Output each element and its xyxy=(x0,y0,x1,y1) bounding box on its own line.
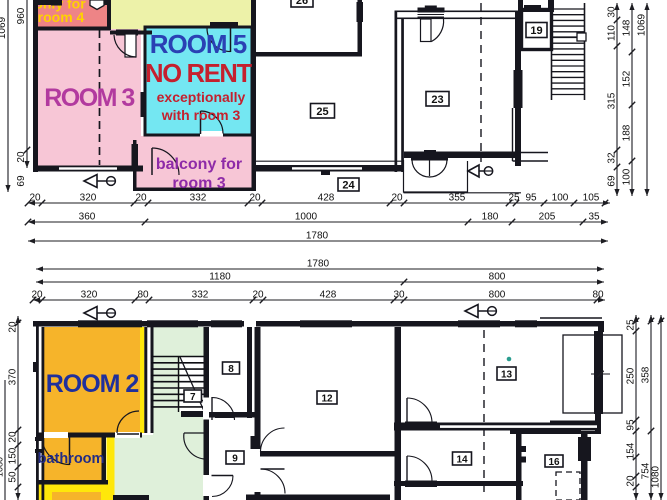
svg-text:1069: 1069 xyxy=(637,13,648,36)
svg-text:20: 20 xyxy=(252,290,264,301)
svg-text:19: 19 xyxy=(530,25,542,37)
svg-text:26: 26 xyxy=(296,0,308,7)
svg-text:148: 148 xyxy=(622,19,633,36)
svg-text:150: 150 xyxy=(8,447,19,464)
svg-text:12: 12 xyxy=(321,394,333,405)
svg-text:1000: 1000 xyxy=(295,212,318,223)
svg-text:105: 105 xyxy=(583,193,600,204)
svg-text:25: 25 xyxy=(626,319,637,331)
svg-text:80: 80 xyxy=(592,290,604,301)
svg-text:24: 24 xyxy=(342,180,355,192)
svg-text:110: 110 xyxy=(607,25,618,41)
svg-text:1780: 1780 xyxy=(307,259,330,270)
svg-text:20: 20 xyxy=(31,290,43,301)
svg-text:1180: 1180 xyxy=(209,272,231,283)
svg-text:332: 332 xyxy=(190,193,207,204)
svg-text:320: 320 xyxy=(80,193,97,204)
svg-text:balcony for: balcony for xyxy=(156,156,242,173)
svg-text:205: 205 xyxy=(539,212,556,223)
svg-text:room 3: room 3 xyxy=(172,175,225,192)
svg-text:1069: 1069 xyxy=(0,16,8,39)
svg-text:1080: 1080 xyxy=(651,465,662,488)
svg-text:180: 180 xyxy=(482,212,499,223)
svg-text:960: 960 xyxy=(16,7,27,24)
svg-text:exceptionally: exceptionally xyxy=(157,89,246,105)
svg-text:250: 250 xyxy=(626,367,637,384)
svg-text:8: 8 xyxy=(228,364,234,375)
svg-text:80: 80 xyxy=(137,290,149,301)
svg-text:9: 9 xyxy=(232,454,238,465)
svg-text:13: 13 xyxy=(501,370,513,381)
svg-text:360: 360 xyxy=(79,212,96,223)
svg-text:23: 23 xyxy=(431,94,443,106)
svg-text:154: 154 xyxy=(626,442,637,459)
svg-text:bathroom: bathroom xyxy=(38,451,105,467)
svg-text:428: 428 xyxy=(318,193,335,204)
svg-text:25: 25 xyxy=(316,106,328,118)
svg-text:14: 14 xyxy=(456,455,468,466)
svg-text:800: 800 xyxy=(489,272,506,283)
svg-text:7: 7 xyxy=(190,392,196,403)
svg-text:with room 3: with room 3 xyxy=(161,107,241,123)
svg-text:800: 800 xyxy=(489,290,506,301)
svg-text:room 4: room 4 xyxy=(38,9,85,25)
svg-text:20: 20 xyxy=(135,193,147,204)
svg-text:315: 315 xyxy=(607,92,618,109)
svg-text:100: 100 xyxy=(622,168,633,185)
svg-text:69: 69 xyxy=(16,175,27,187)
svg-text:30: 30 xyxy=(393,290,405,301)
svg-text:16: 16 xyxy=(548,457,560,468)
svg-text:1080: 1080 xyxy=(0,457,5,477)
svg-text:32: 32 xyxy=(607,152,618,164)
svg-text:332: 332 xyxy=(192,290,209,301)
svg-text:ROOM 5: ROOM 5 xyxy=(150,29,247,59)
svg-text:ROOM 2: ROOM 2 xyxy=(46,370,139,398)
svg-text:1780: 1780 xyxy=(306,231,329,242)
svg-text:20: 20 xyxy=(249,193,261,204)
svg-text:95: 95 xyxy=(525,193,537,204)
svg-text:188: 188 xyxy=(622,124,633,141)
svg-text:20: 20 xyxy=(8,321,19,333)
svg-text:358: 358 xyxy=(641,366,652,383)
svg-text:69: 69 xyxy=(607,175,618,187)
svg-text:152: 152 xyxy=(622,70,633,87)
svg-text:NO RENT: NO RENT xyxy=(145,60,252,88)
svg-text:50: 50 xyxy=(8,471,19,483)
svg-text:20: 20 xyxy=(29,193,41,204)
svg-text:20: 20 xyxy=(626,475,637,487)
svg-text:ROOM 3: ROOM 3 xyxy=(44,84,134,112)
svg-text:428: 428 xyxy=(320,290,337,301)
svg-text:370: 370 xyxy=(8,368,19,385)
svg-text:20: 20 xyxy=(8,431,19,443)
svg-text:320: 320 xyxy=(81,290,98,301)
svg-text:95: 95 xyxy=(626,419,637,431)
svg-text:35: 35 xyxy=(588,212,600,223)
svg-text:25: 25 xyxy=(508,193,520,204)
svg-text:20: 20 xyxy=(391,193,403,204)
svg-text:20: 20 xyxy=(16,151,27,163)
svg-text:30: 30 xyxy=(607,6,618,18)
svg-text:355: 355 xyxy=(449,193,466,204)
svg-text:100: 100 xyxy=(552,193,569,204)
